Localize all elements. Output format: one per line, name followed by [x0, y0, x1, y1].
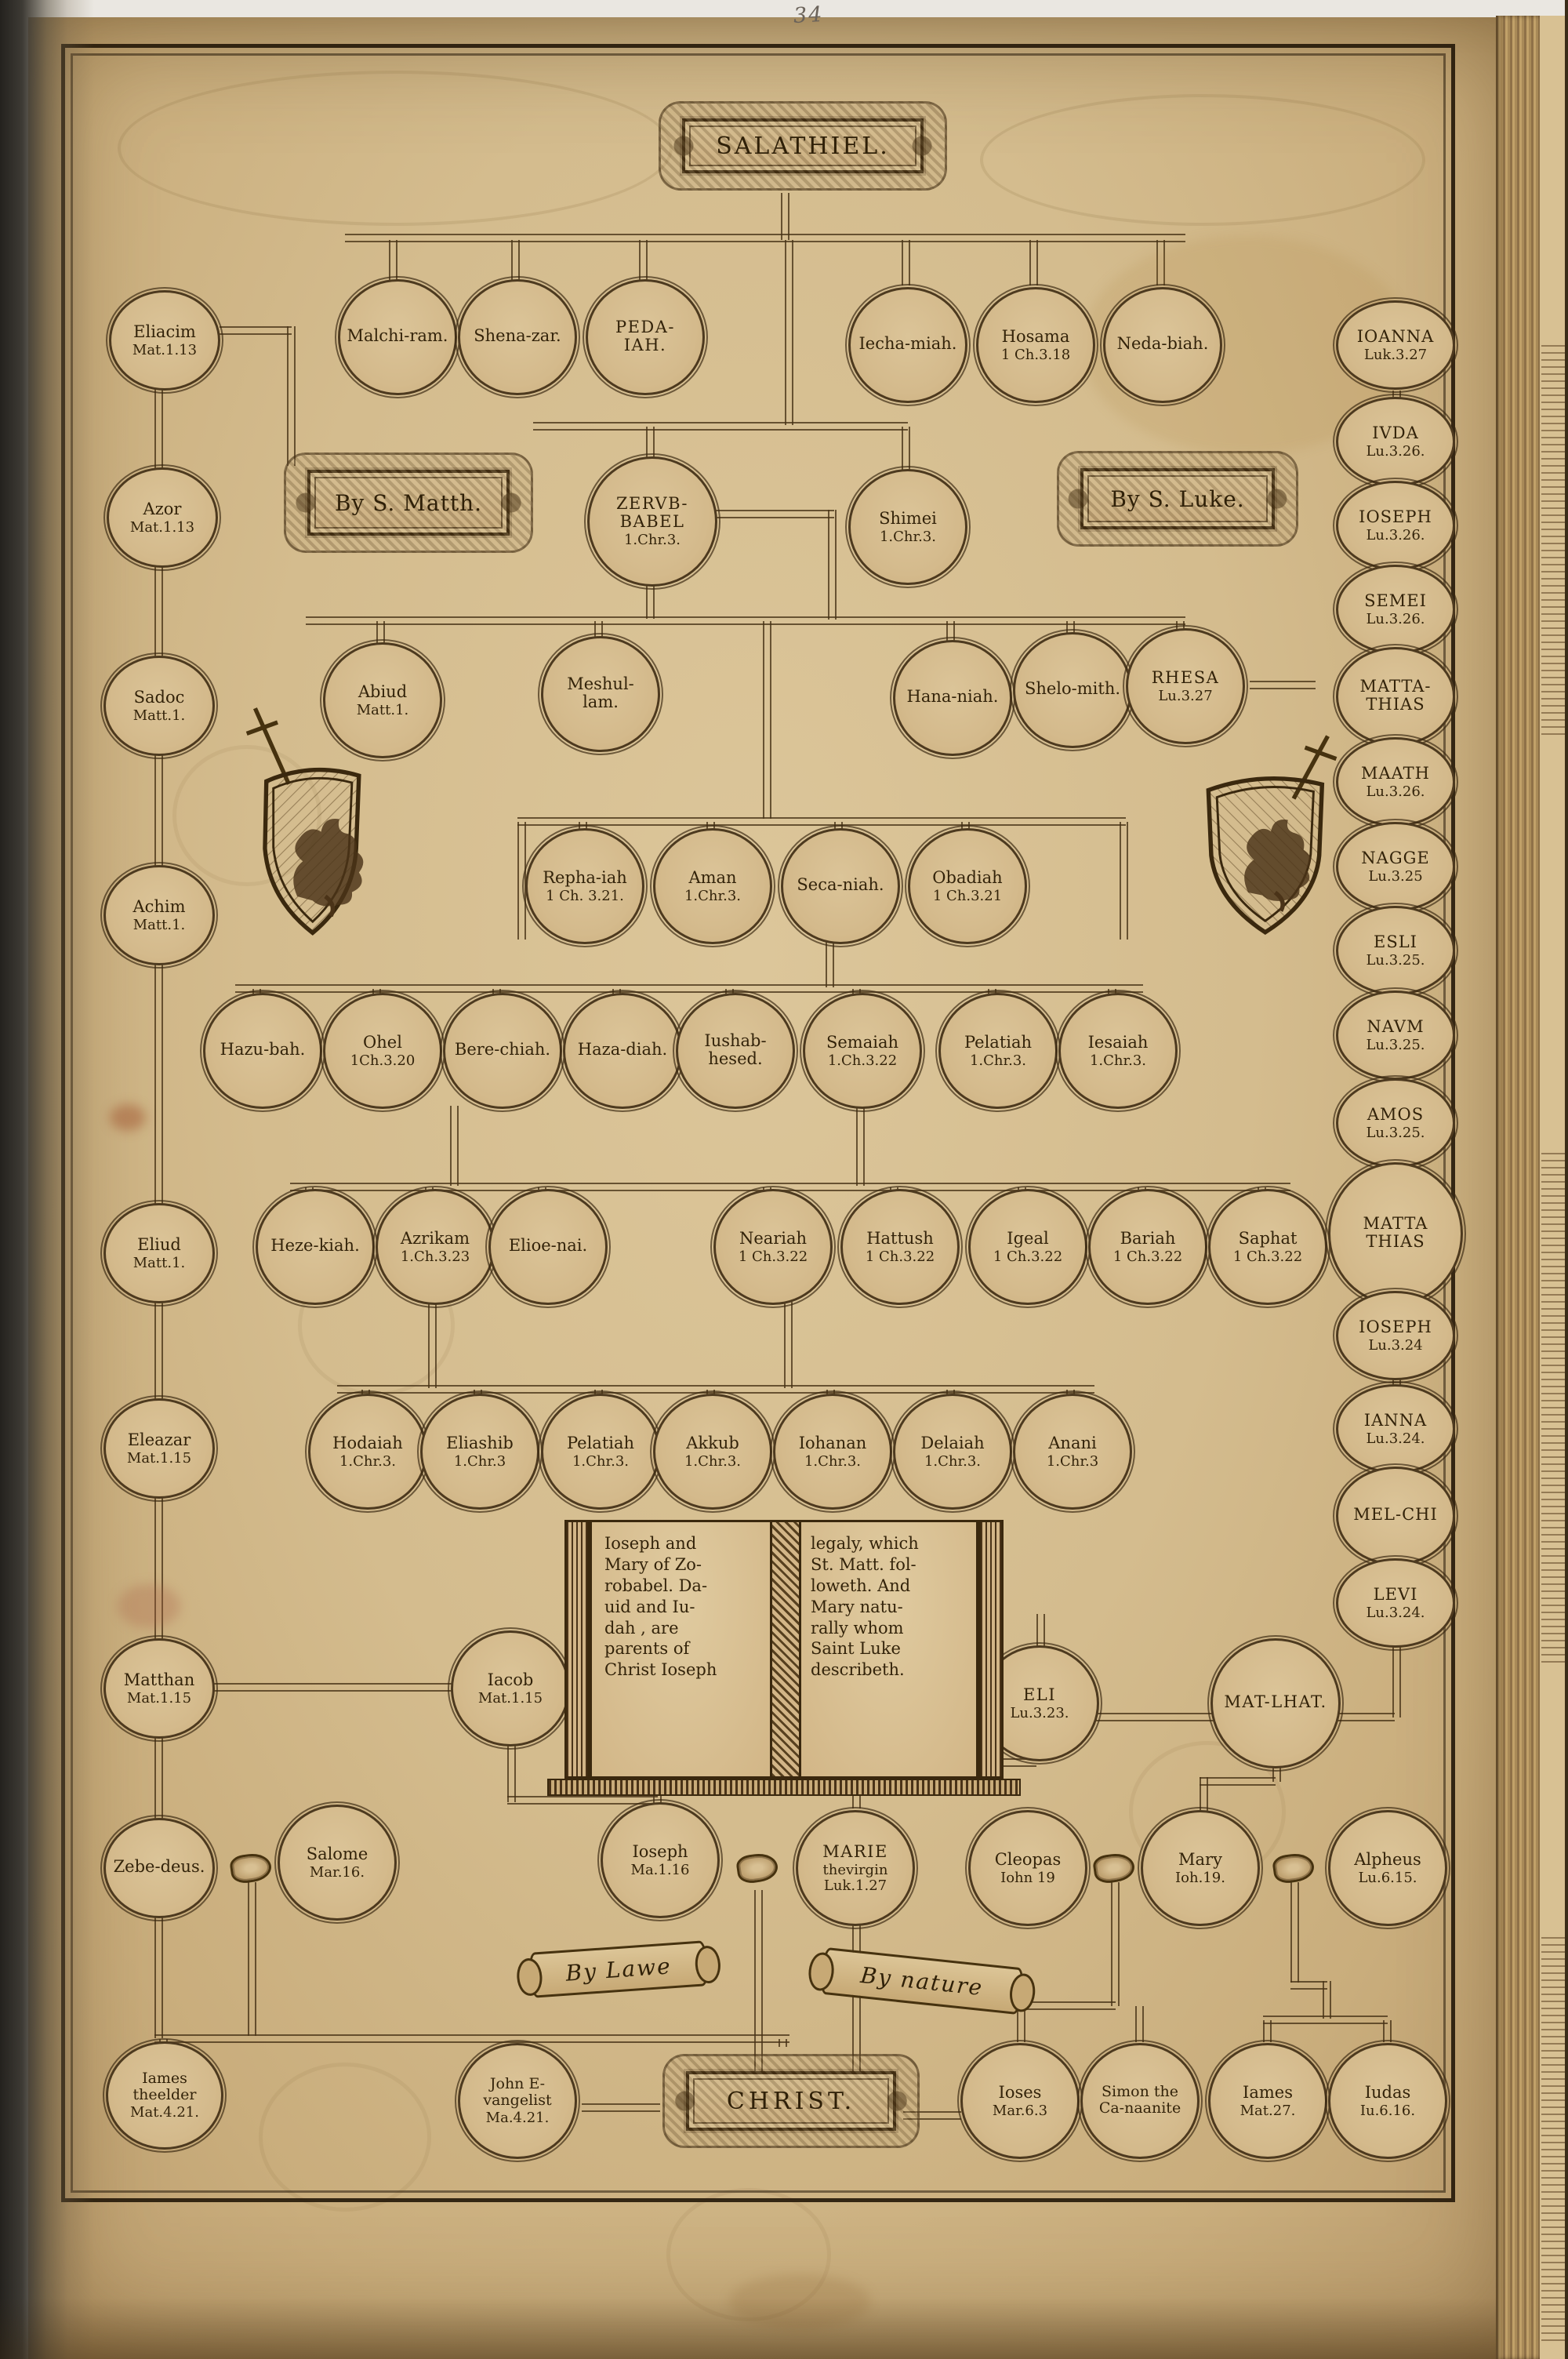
connector	[337, 1385, 1094, 1394]
node-sadoc: SadocMatt.1.	[103, 656, 215, 756]
book-left-page: Ioseph and Mary of Zo- robabel. Da- uid …	[590, 1520, 772, 1779]
connector	[1096, 1713, 1215, 1721]
connector	[1335, 1713, 1395, 1721]
node-iames-less: IamesMat.27.	[1208, 2043, 1327, 2159]
book-left-text: Ioseph and Mary of Zo- robabel. Da- uid …	[604, 1534, 717, 1679]
node-mattathias2: MATTA THIAS	[1328, 1162, 1463, 1305]
node-pelatiah-b: Pelatiah1.Chr.3.	[541, 1394, 660, 1510]
node-malchiram: Malchi-ram.	[338, 279, 457, 395]
salathiel-label: SALATHIEL.	[716, 133, 890, 160]
node-abiud: AbiudMatt.1.	[323, 642, 442, 758]
node-zebedeus: Zebe-deus.	[103, 1818, 215, 1918]
connector	[235, 984, 1143, 993]
by-luke-cartouche: By S. Luke.	[1080, 468, 1275, 529]
connector	[1120, 822, 1128, 940]
connector	[1290, 1981, 1327, 1990]
page-number: 34	[793, 2, 824, 28]
node-amos: AMOSLu.3.25.	[1336, 1078, 1455, 1168]
book-fore-edge	[1496, 16, 1540, 2359]
node-nagge: NAGGELu.3.25	[1336, 822, 1455, 911]
by-law-label: By Lawe	[564, 1953, 672, 1986]
adjacent-page-text	[1541, 345, 1566, 737]
connector	[389, 240, 397, 281]
connector	[856, 1106, 865, 1186]
node-pelatiah-a: Pelatiah1.Chr.3.	[938, 993, 1058, 1109]
connector	[1323, 1981, 1331, 2019]
node-iechamiah: Iecha-miah.	[848, 287, 967, 403]
node-hodaiah: Hodaiah1.Chr.3.	[308, 1394, 427, 1510]
connector	[826, 942, 834, 987]
book-base-hatching	[547, 1779, 1021, 1796]
connector	[511, 240, 520, 281]
node-nedabiah: Neda-biah.	[1103, 287, 1222, 403]
node-mary: MaryIoh.19.	[1141, 1810, 1260, 1926]
book-page-edges-left	[564, 1520, 590, 1779]
node-ioseph-l2: IOSEPHLu.3.24	[1336, 1291, 1455, 1380]
connector	[1036, 1614, 1045, 1648]
node-berechiah: Bere-chiah.	[443, 993, 562, 1109]
node-hosama: Hosama1 Ch.3.18	[976, 287, 1095, 403]
node-iacob: IacobMat.1.15	[451, 1630, 570, 1747]
node-elioenai: Elioe-nai.	[488, 1189, 608, 1305]
node-meshullam: Meshul-lam.	[541, 636, 660, 752]
book-right-text: legaly, which St. Matt. fol- loweth. And…	[811, 1534, 919, 1679]
node-secaniah: Seca-niah.	[781, 828, 900, 944]
connector	[639, 240, 648, 281]
by-luke-label: By S. Luke.	[1110, 486, 1244, 512]
node-igeal: Igeal1 Ch.3.22	[968, 1189, 1087, 1305]
node-iesaiah: Iesaiah1.Chr.3.	[1058, 993, 1178, 1109]
by-matthew-cartouche: By S. Matth.	[307, 470, 510, 536]
node-eliud: EliudMatt.1.	[103, 1203, 215, 1303]
node-cleopas: CleopasIohn 19	[968, 1810, 1087, 1926]
node-shelomith: Shelo-mith.	[1013, 632, 1132, 748]
node-hananiah: Hana-niah.	[893, 640, 1012, 756]
node-zerubbabel: ZERVB-BABEL1.Chr.3.	[587, 456, 717, 587]
node-semei: SEMEILu.3.26.	[1336, 565, 1455, 654]
connector	[715, 510, 834, 518]
connector	[1135, 2006, 1144, 2042]
connector	[646, 584, 655, 619]
node-alpheus: AlpheusLu.6.15.	[1328, 1810, 1447, 1926]
connector	[212, 1683, 456, 1692]
node-ioseph-husband: IosephMa.1.16	[601, 1802, 720, 1918]
node-saphat: Saphat1 Ch.3.22	[1208, 1189, 1327, 1305]
by-matthew-label: By S. Matth.	[335, 490, 482, 516]
node-iohanan: Iohanan1.Chr.3.	[773, 1394, 892, 1510]
connector	[781, 193, 789, 240]
node-eliashib: Eliashib1.Chr.3	[420, 1394, 539, 1510]
node-marie: MARIEthevirgin Luk.1.27	[796, 1810, 915, 1926]
adjacent-page-text	[1541, 1937, 1566, 2345]
node-mattathias1: MATTA-THIAS	[1336, 647, 1455, 746]
node-hazubah: Hazu-bah.	[203, 993, 322, 1109]
node-hattush: Hattush1 Ch.3.22	[840, 1189, 960, 1305]
node-delaiah: Delaiah1.Chr.3.	[893, 1394, 1012, 1510]
node-eleazar: EleazarMat.1.15	[103, 1398, 215, 1499]
node-shimei: Shimei1.Chr.3.	[848, 469, 967, 585]
book-right-page: legaly, which St. Matt. fol- loweth. And…	[799, 1520, 978, 1779]
connector	[1263, 2020, 1272, 2042]
connector	[1156, 240, 1165, 285]
node-matlhat: MAT-LHAT.	[1210, 1638, 1341, 1768]
connector	[1383, 2020, 1392, 2042]
connector	[1263, 2016, 1388, 2024]
connector	[306, 616, 1185, 625]
node-azor: AzorMat.1.13	[107, 467, 218, 568]
connector	[533, 422, 908, 431]
connector	[428, 1302, 437, 1388]
node-obadiah: Obadiah1 Ch.3.21	[908, 828, 1027, 944]
connector	[1250, 681, 1316, 689]
connector	[220, 326, 292, 335]
book-spine	[772, 1520, 799, 1779]
node-levi: LEVILu.3.24.	[1336, 1558, 1455, 1648]
node-achim: AchimMatt.1.	[103, 865, 215, 965]
node-john-evangelist: John E-vangelistMa.4.21.	[458, 2043, 577, 2159]
connector	[784, 1302, 793, 1388]
node-iames-elder: Iames theelderMat.4.21.	[106, 2041, 223, 2150]
node-iushabhesed: Iushab-hesed.	[676, 993, 795, 1109]
scanned-genealogy-page: 34	[0, 0, 1568, 2359]
node-iudas: IudasIu.6.16.	[1328, 2043, 1447, 2159]
node-rephaiah: Repha-iah1 Ch. 3.21.	[525, 828, 644, 944]
node-hezekiah: Heze-kiah.	[256, 1189, 375, 1305]
node-navm: NAVMLu.3.25.	[1336, 990, 1455, 1080]
connector	[1029, 240, 1038, 285]
node-neariah: Neariah1 Ch.3.22	[713, 1189, 833, 1305]
connector	[154, 2034, 789, 2043]
connector	[828, 510, 837, 620]
open-book-illustration: Ioseph and Mary of Zo- robabel. Da- uid …	[564, 1520, 1004, 1779]
christ-label: CHRIST.	[727, 2088, 855, 2115]
connector	[376, 621, 385, 645]
connector	[450, 1106, 459, 1186]
photo-edge	[1565, 0, 1568, 2359]
node-ohel: Ohel1Ch.3.20	[323, 993, 442, 1109]
node-melchi: MEL-CHI	[1336, 1467, 1455, 1565]
connector	[763, 621, 771, 819]
connector	[785, 240, 793, 425]
photo-background-strip	[0, 0, 1568, 17]
connector	[1200, 1777, 1276, 1786]
connector	[507, 1746, 516, 1802]
adjacent-page-text	[1541, 1153, 1566, 1663]
node-ioseph-l1: IOSEPHLu.3.26.	[1336, 481, 1455, 570]
connector	[1200, 1777, 1208, 1812]
node-shenazar: Shena-zar.	[458, 279, 577, 395]
connector	[902, 427, 910, 471]
salathiel-cartouche: SALATHIEL.	[682, 118, 924, 173]
node-eliacim: EliacimMat.1.13	[109, 290, 220, 391]
node-azrikam: Azrikam1.Ch.3.23	[376, 1189, 495, 1305]
node-matthan: MatthanMat.1.15	[103, 1638, 215, 1739]
connector	[754, 1890, 763, 2074]
node-salome: SalomeMar.16.	[278, 1805, 397, 1921]
node-ianna: IANNALu.3.24.	[1336, 1384, 1455, 1474]
connector	[248, 1882, 256, 2036]
node-ioanna: IOANNALuk.3.27	[1336, 300, 1455, 390]
node-akkub: Akkub1.Chr.3.	[653, 1394, 772, 1510]
connector	[287, 326, 296, 466]
node-maath: MAATHLu.3.26.	[1336, 737, 1455, 827]
node-semaiah: Semaiah1.Ch.3.22	[803, 993, 922, 1109]
adjacent-page-sliver	[1540, 16, 1568, 2359]
node-bariah: Bariah1 Ch.3.22	[1088, 1189, 1207, 1305]
connector	[1290, 1882, 1299, 1983]
connector	[507, 1796, 658, 1805]
book-page-edges-right	[978, 1520, 1004, 1779]
node-simon: Simon the Ca-naanite	[1080, 2043, 1200, 2159]
connector	[345, 234, 1185, 242]
node-ivda: IVDALu.3.26.	[1336, 397, 1455, 486]
by-nature-label: By nature	[859, 1961, 985, 2000]
connector	[779, 2039, 787, 2047]
connector	[582, 2103, 660, 2112]
node-esli: ESLILu.3.25.	[1336, 906, 1455, 995]
heraldic-shield-lion-right-icon	[1185, 733, 1342, 961]
connector	[902, 240, 910, 285]
node-pedaiah: PEDA-IAH.	[586, 279, 705, 395]
node-rhesa: RHESALu.3.27	[1126, 628, 1245, 744]
christ-cartouche: CHRIST.	[686, 2071, 896, 2131]
bleedthrough-ghost	[666, 2188, 831, 2321]
node-hazadiah: Haza-diah.	[563, 993, 682, 1109]
connector	[1111, 1882, 1120, 2006]
node-aman: Aman1.Chr.3.	[653, 828, 772, 944]
node-ioses: IosesMar.6.3	[960, 2043, 1080, 2159]
connector	[517, 817, 1126, 826]
node-anani: Anani1.Chr.3	[1013, 1394, 1132, 1510]
